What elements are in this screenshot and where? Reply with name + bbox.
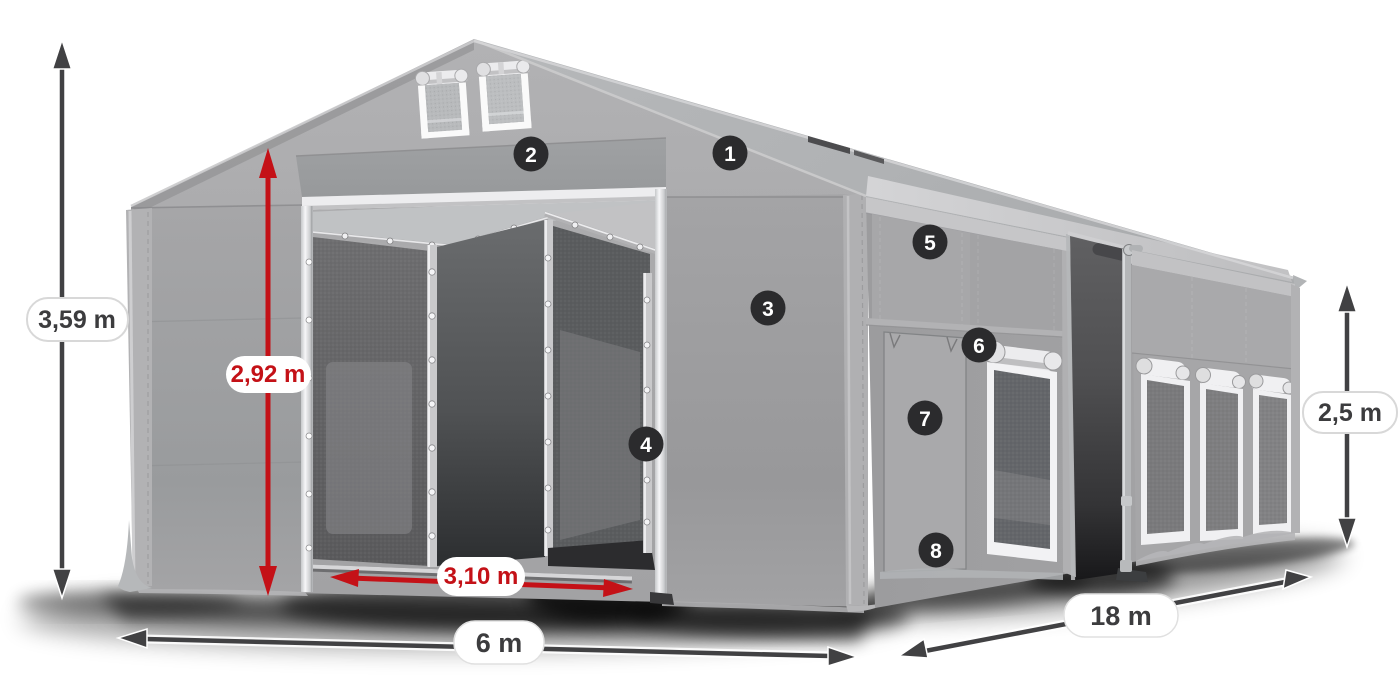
svg-text:6: 6 (973, 335, 985, 358)
svg-text:18 m: 18 m (1090, 601, 1152, 631)
svg-text:5: 5 (924, 232, 936, 255)
svg-text:4: 4 (640, 434, 652, 457)
svg-text:8: 8 (930, 540, 942, 563)
svg-text:6 m: 6 m (476, 628, 523, 658)
svg-text:2,5 m: 2,5 m (1318, 399, 1382, 427)
svg-text:1: 1 (724, 143, 736, 166)
svg-text:3,59 m: 3,59 m (38, 306, 116, 334)
svg-text:2,92 m: 2,92 m (231, 361, 306, 388)
svg-text:7: 7 (919, 408, 931, 431)
svg-text:3: 3 (762, 298, 774, 321)
svg-text:2: 2 (525, 144, 537, 167)
svg-text:3,10 m: 3,10 m (444, 563, 519, 590)
